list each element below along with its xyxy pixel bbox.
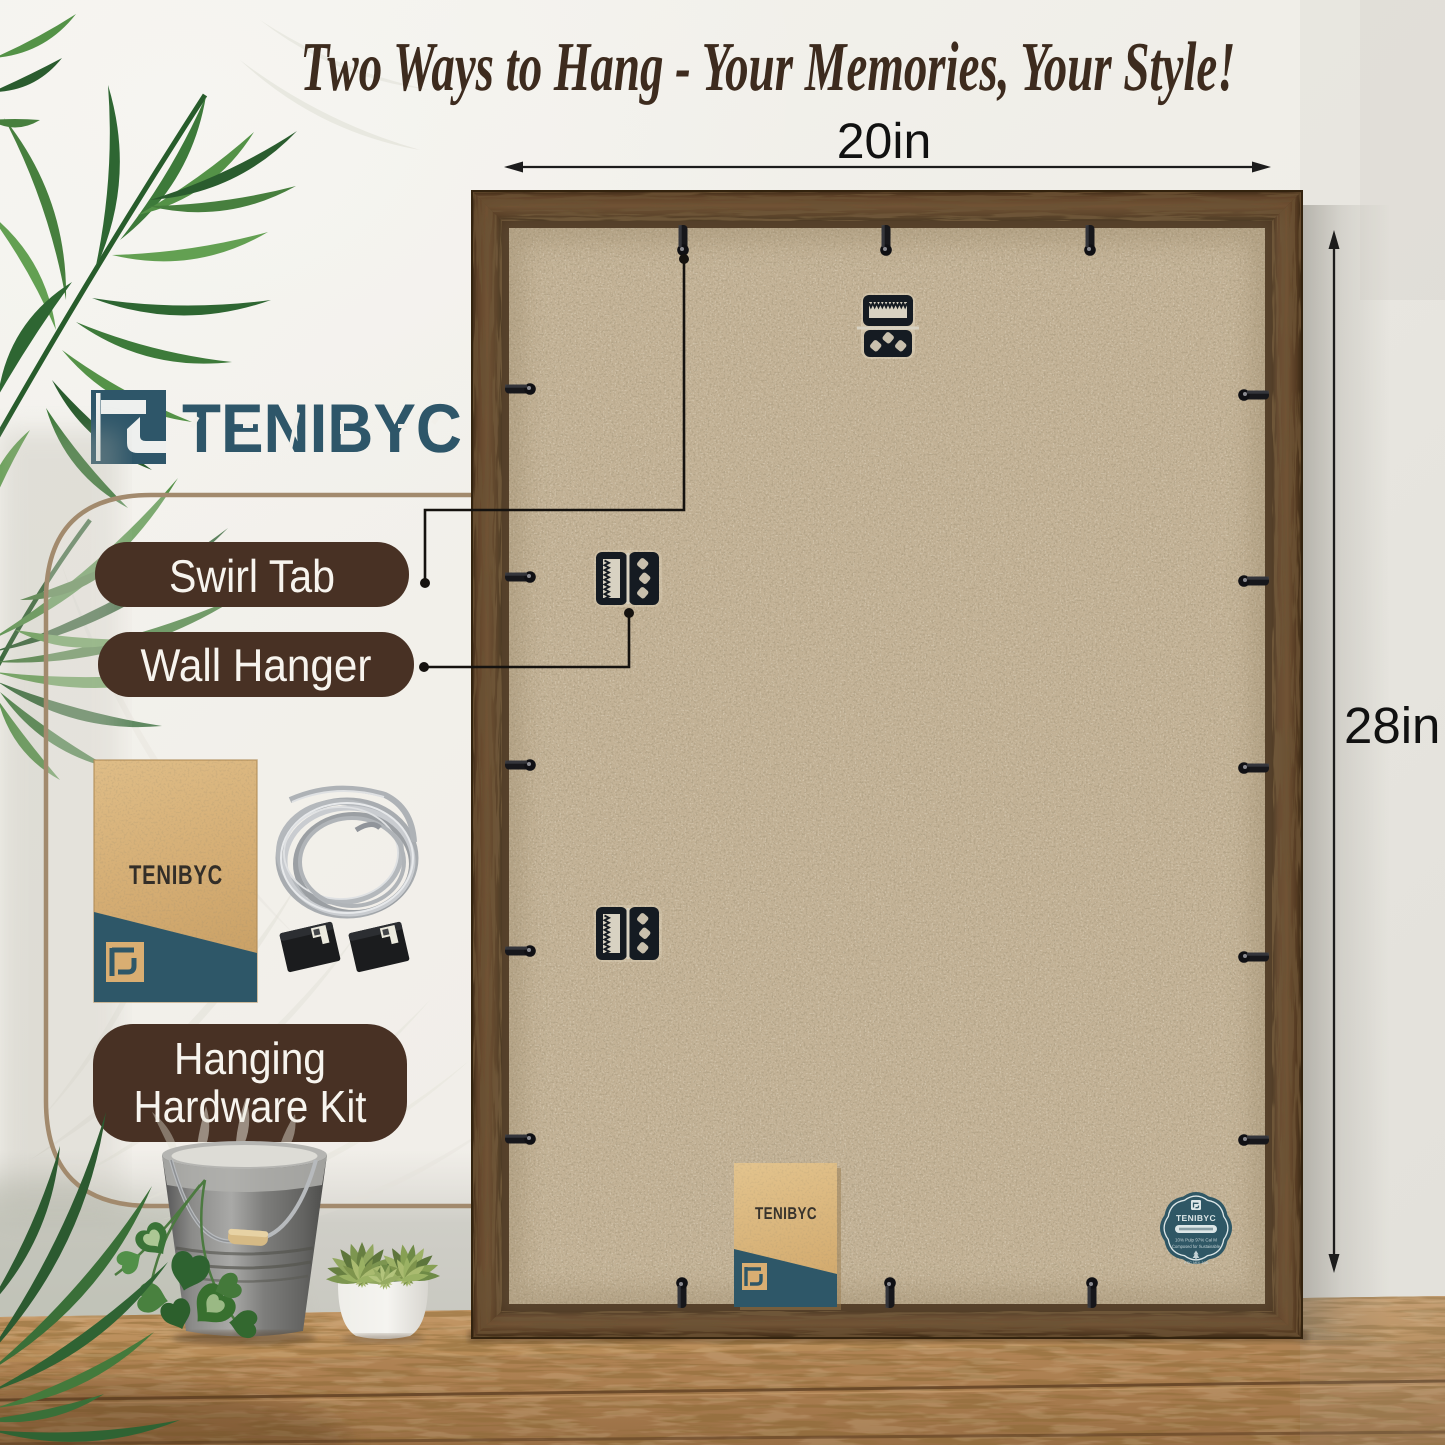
svg-text:Hanging: Hanging <box>174 1033 326 1084</box>
svg-text:TENIBYC: TENIBYC <box>1176 1213 1216 1223</box>
svg-text:28in: 28in <box>1344 697 1440 754</box>
svg-text:Hardware Kit: Hardware Kit <box>134 1081 367 1132</box>
svg-text:Swirl Tab: Swirl Tab <box>169 550 335 602</box>
svg-text:10% Pulp 97% Cal M: 10% Pulp 97% Cal M <box>1175 1238 1217 1243</box>
svg-text:TENIBYC: TENIBYC <box>129 860 223 890</box>
svg-text:FSC MIX 100: FSC MIX 100 <box>1184 1261 1208 1265</box>
svg-text:Composed for Sustainable: Composed for Sustainable <box>1172 1244 1220 1249</box>
svg-text:Wall Hanger: Wall Hanger <box>141 639 372 691</box>
svg-text:TENIBYC: TENIBYC <box>755 1204 817 1223</box>
svg-text:Two Ways to Hang - Your Memori: Two Ways to Hang - Your Memories, Your S… <box>301 29 1236 106</box>
svg-text:TENIBYC: TENIBYC <box>182 390 462 467</box>
svg-text:20in: 20in <box>837 113 932 169</box>
